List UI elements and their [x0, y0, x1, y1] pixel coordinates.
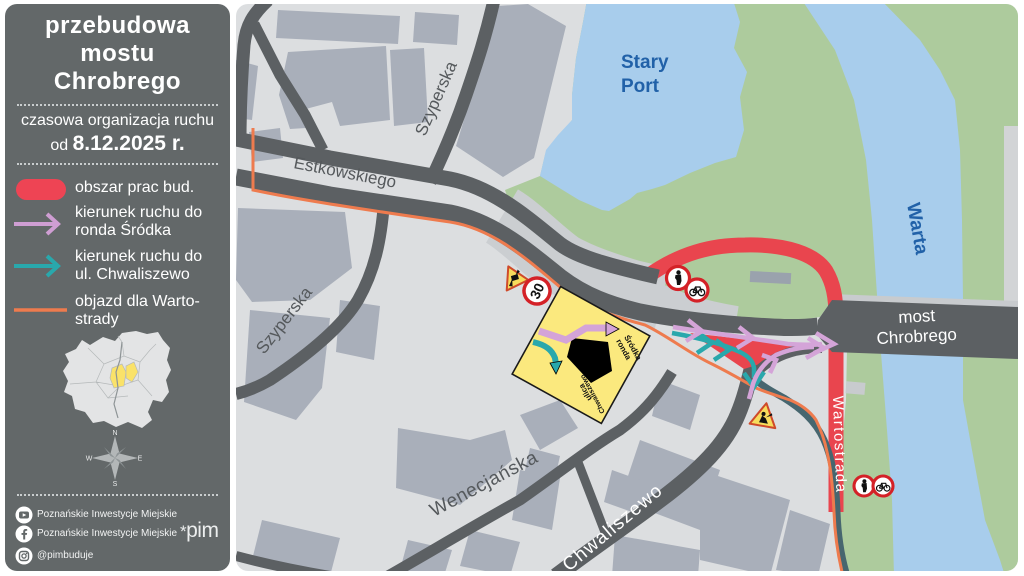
svg-text:most: most	[898, 306, 936, 327]
svg-text:E: E	[138, 456, 143, 463]
svg-text:Port: Port	[621, 76, 660, 97]
svg-text:Stary: Stary	[621, 52, 669, 73]
svg-text:S: S	[113, 481, 118, 488]
svg-text:W: W	[86, 456, 93, 463]
svg-text:Wartostrada: Wartostrada	[829, 396, 849, 494]
svg-text:N: N	[112, 430, 117, 437]
